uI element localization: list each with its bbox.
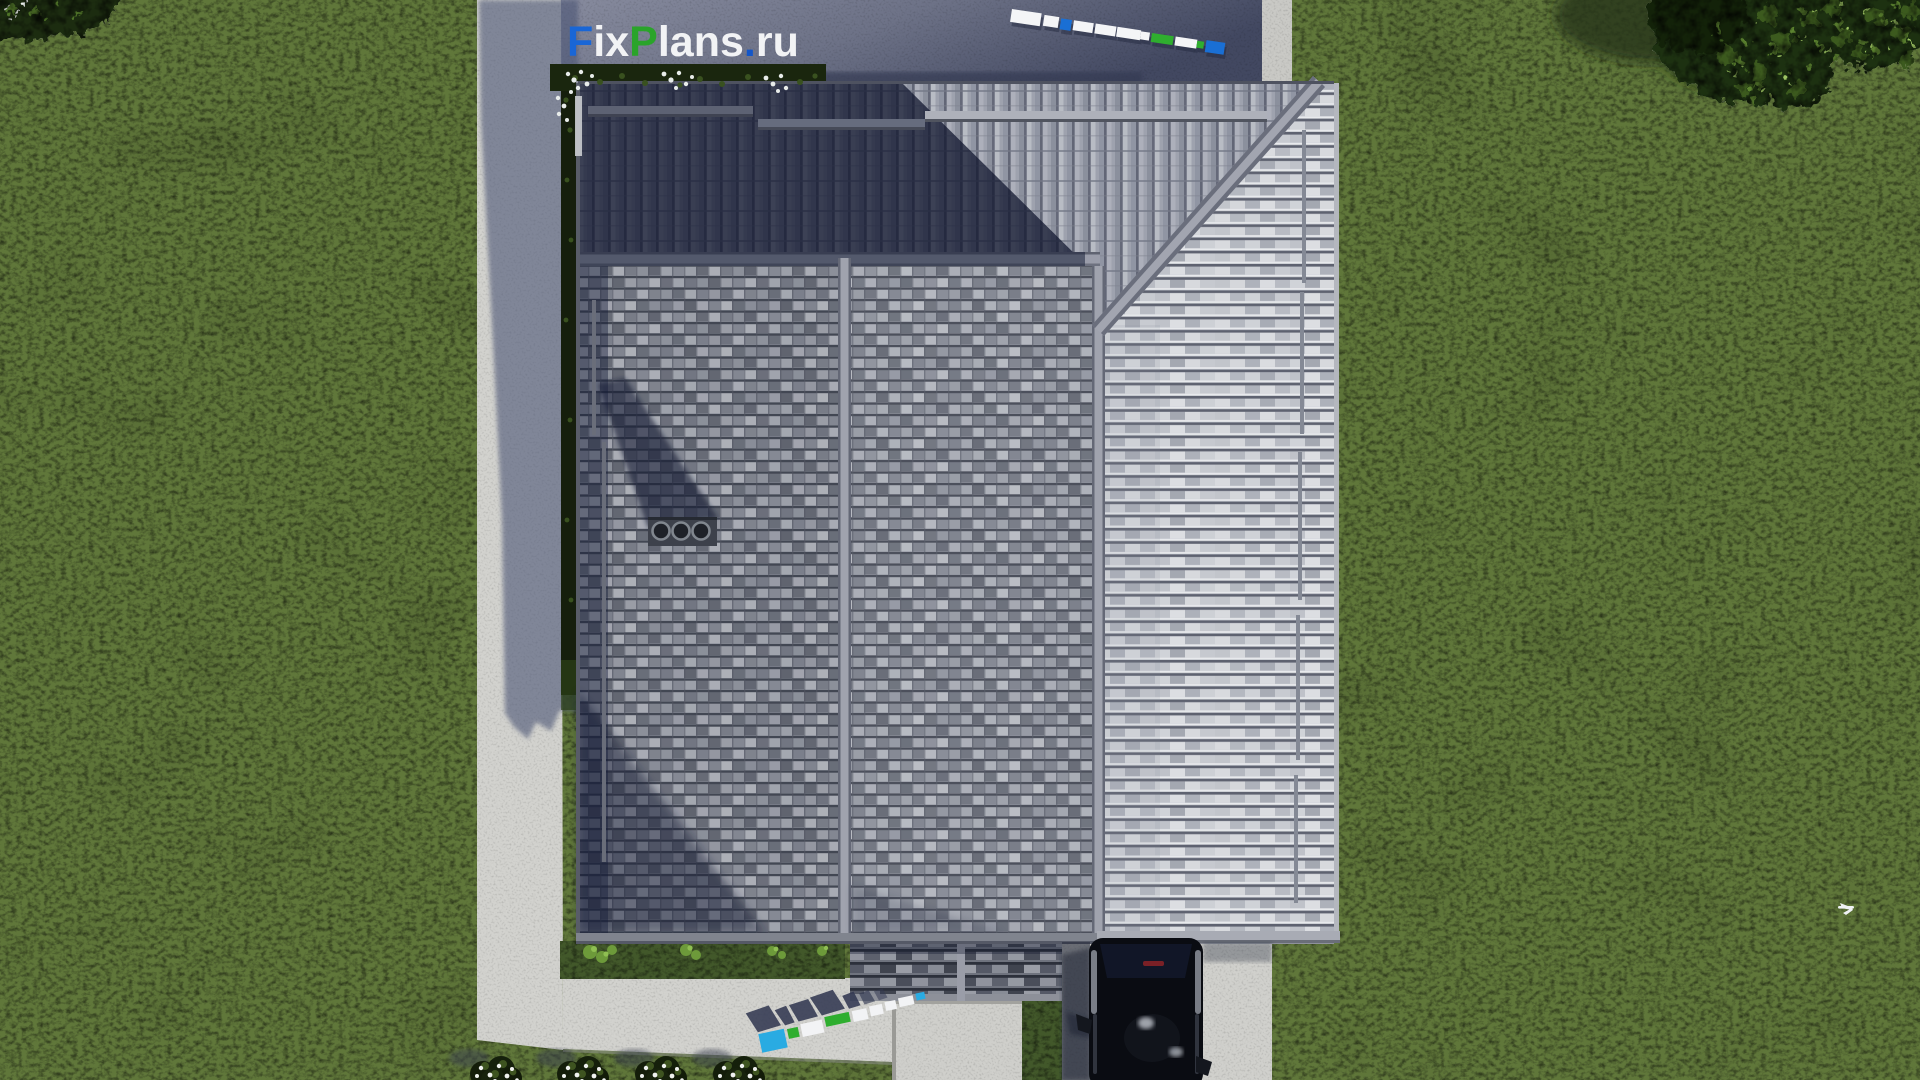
svg-text:FixPlans.ru: FixPlans.ru <box>567 18 799 66</box>
